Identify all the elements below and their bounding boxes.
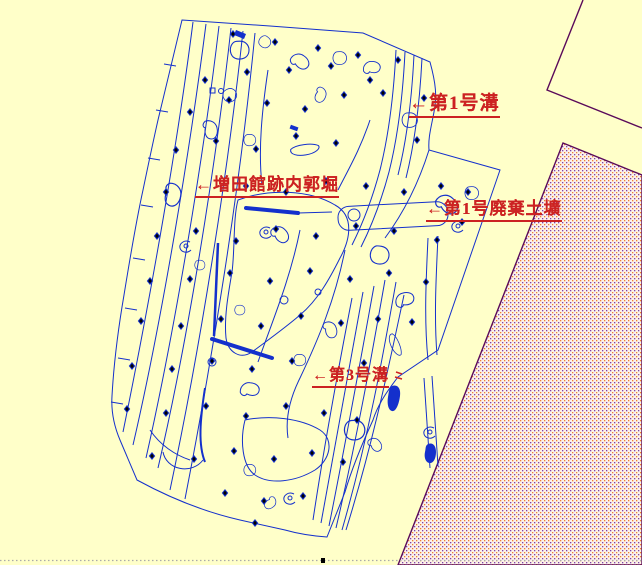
inner-moat-outline bbox=[212, 201, 449, 358]
label-ditch-3: ←第3号溝 bbox=[312, 367, 389, 388]
label-waste-pit-1: ←第1号廃棄土壙 bbox=[426, 200, 562, 222]
ditch-1-lines bbox=[352, 50, 429, 247]
central-contours bbox=[150, 70, 438, 481]
boundary-road-line bbox=[547, 0, 642, 128]
site-map: ←第1号溝 ←増田館跡内郭堀 ←第1号廃棄土壙 ←第3号溝 bbox=[0, 0, 642, 565]
label-ditch-1: ←第1号溝 bbox=[409, 94, 500, 118]
label-inner-moat: ←増田館跡内郭堀 bbox=[195, 176, 339, 198]
site-map-canvas bbox=[0, 0, 642, 565]
baseline-tick bbox=[321, 558, 325, 563]
